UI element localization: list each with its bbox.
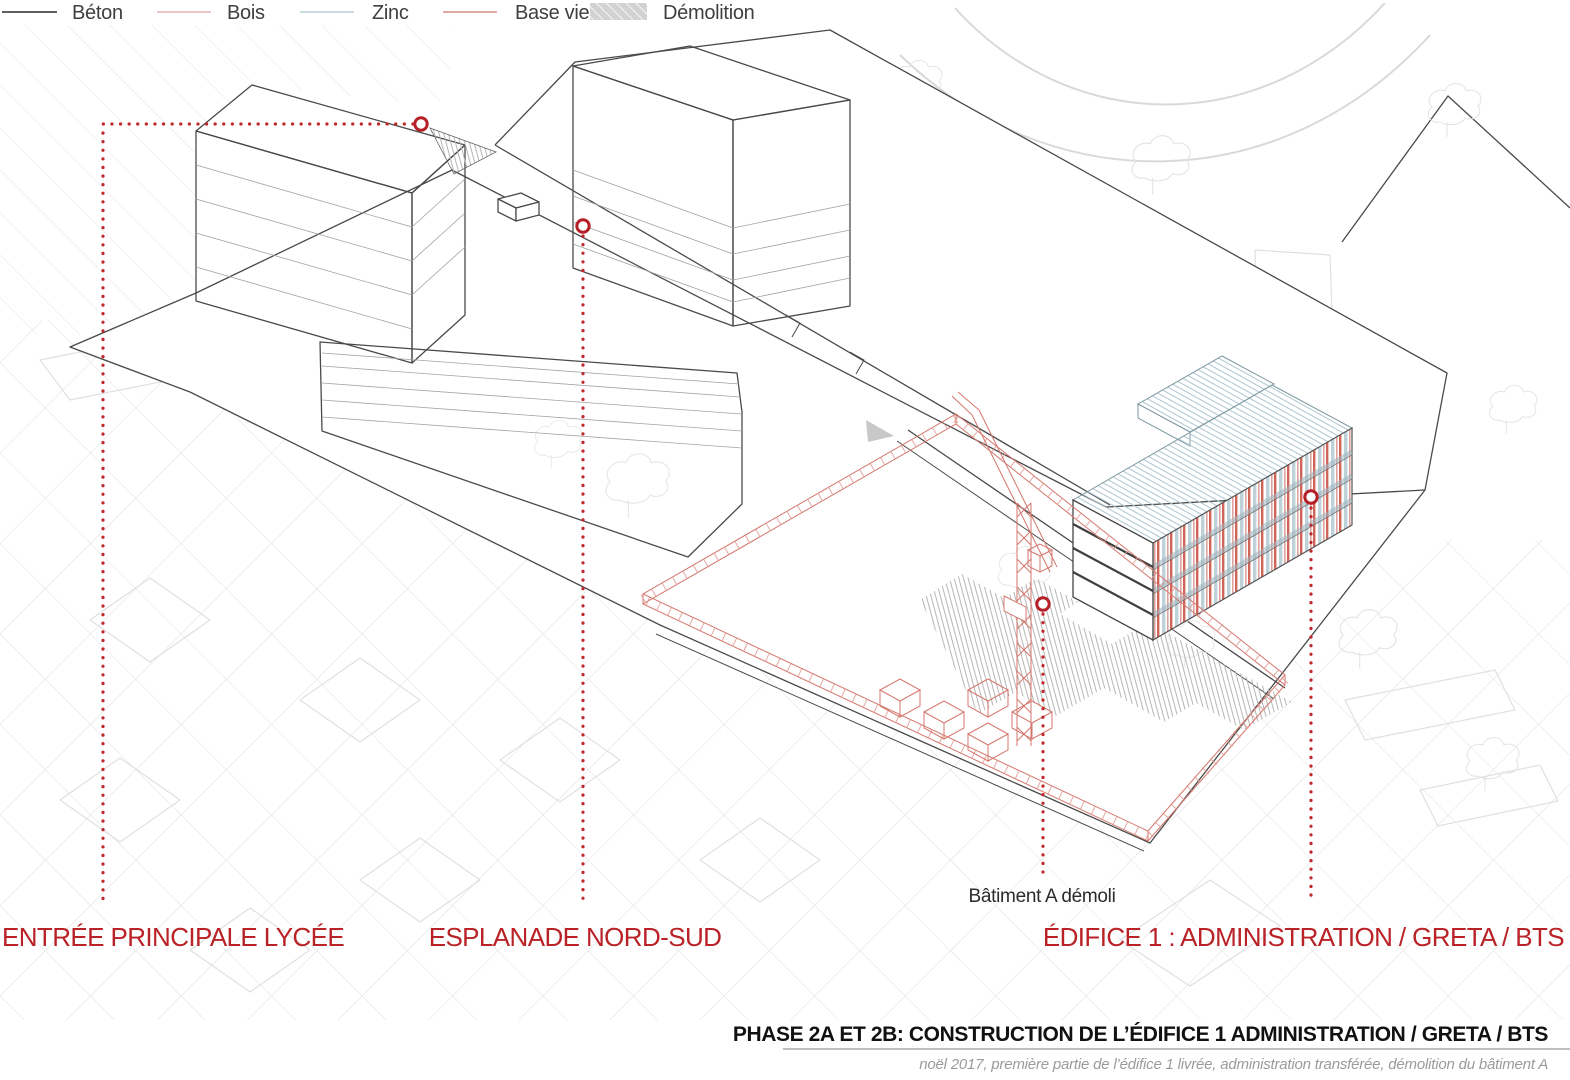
caption-block: PHASE 2A ET 2B: CONSTRUCTION DE L’ÉDIFIC… — [733, 1023, 1570, 1073]
marker-esplanade — [577, 220, 589, 232]
site-boundary-topright — [1342, 96, 1570, 242]
callout-esplanade-label: ESPLANADE NORD-SUD — [429, 922, 722, 952]
callout-edifice1-label: ÉDIFICE 1 : ADMINISTRATION / GRETA / BTS — [1043, 922, 1564, 952]
legend-demolition-swatch — [590, 3, 647, 20]
marker-edifice1 — [1305, 491, 1317, 503]
callout-batiment-a-label: Bâtiment A démoli — [969, 886, 1116, 907]
legend-demolition-label: Démolition — [663, 2, 754, 24]
legend-base-vie-label: Base vie — [515, 2, 589, 24]
callout-entree-label: ENTRÉE PRINCIPALE LYCÉE — [2, 922, 344, 952]
marker-entree — [415, 118, 427, 130]
axonometric-drawing: ENTRÉE PRINCIPALE LYCÉE ESPLANADE NORD-S… — [0, 0, 1570, 1080]
marker-batiment-a — [1037, 598, 1049, 610]
phase-title: PHASE 2A ET 2B: CONSTRUCTION DE L’ÉDIFIC… — [733, 1023, 1549, 1046]
phasing-diagram-page: ENTRÉE PRINCIPALE LYCÉE ESPLANADE NORD-S… — [0, 0, 1570, 1080]
legend-bois-label: Bois — [227, 2, 265, 24]
legend-beton-label: Béton — [72, 2, 123, 24]
legend: Béton Bois Zinc Base vie Démolition — [2, 2, 754, 24]
phase-subtitle: noël 2017, première partie de l’édifice … — [919, 1056, 1548, 1073]
legend-zinc-label: Zinc — [372, 2, 409, 24]
